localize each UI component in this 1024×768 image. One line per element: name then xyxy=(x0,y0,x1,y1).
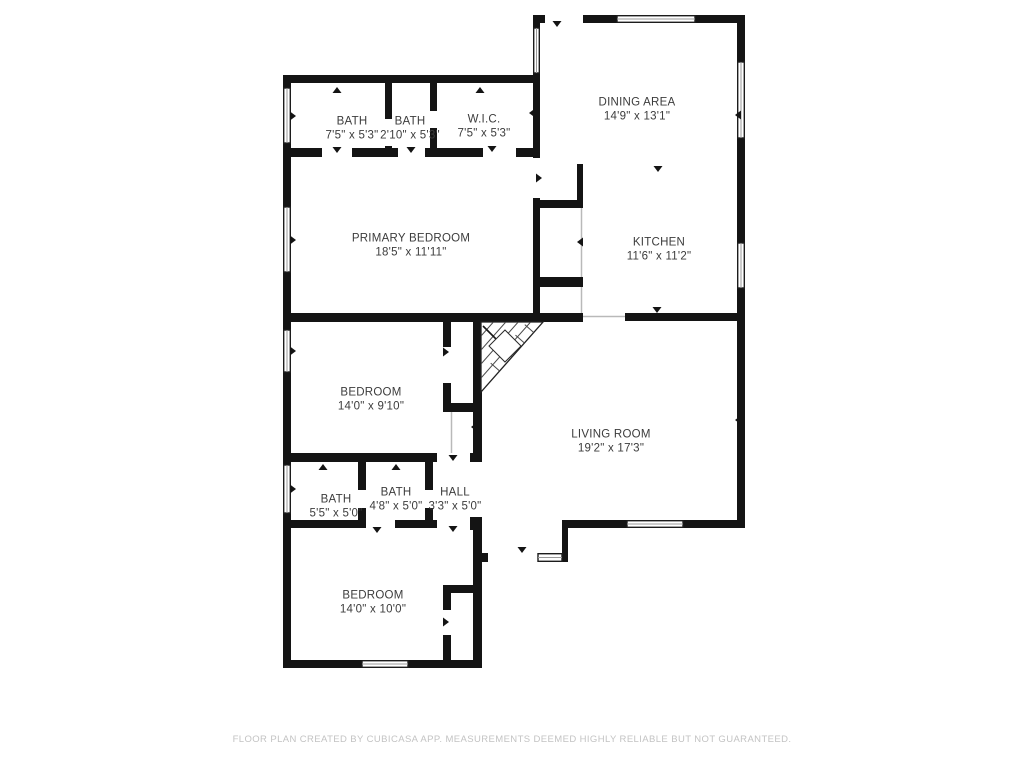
door-marker-icon xyxy=(319,464,328,470)
floor-plan-svg xyxy=(0,0,1024,768)
room-name: BATH xyxy=(369,487,422,501)
door-marker-icon xyxy=(518,547,527,553)
room-label: PRIMARY BEDROOM18'5" x 11'11" xyxy=(352,233,470,260)
door-marker-icon xyxy=(653,307,662,313)
door-marker-icon xyxy=(392,464,401,470)
door-marker-icon xyxy=(333,87,342,93)
stairs-icon xyxy=(481,322,543,392)
room-name: LIVING ROOM xyxy=(571,429,650,443)
door-marker-icon xyxy=(443,348,449,357)
room-dims: 11'6" x 11'2" xyxy=(627,250,692,264)
room-name: PRIMARY BEDROOM xyxy=(352,233,470,247)
room-name: W.I.C. xyxy=(457,114,510,128)
footer-disclaimer: FLOOR PLAN CREATED BY CUBICASA APP. MEAS… xyxy=(0,734,1024,745)
room-dims: 7'5" x 5'3" xyxy=(457,127,510,141)
door-marker-icon xyxy=(654,166,663,172)
door-marker-icon xyxy=(443,618,449,627)
door-marker-icon xyxy=(449,455,458,461)
room-dims: 7'5" x 5'3" xyxy=(325,129,378,143)
room-label: HALL3'3" x 5'0" xyxy=(428,487,481,514)
door-marker-icon xyxy=(333,147,342,153)
room-name: BATH xyxy=(325,116,378,130)
room-label: W.I.C.7'5" x 5'3" xyxy=(457,114,510,141)
door-marker-icon xyxy=(476,87,485,93)
room-label: BEDROOM14'0" x 9'10" xyxy=(338,387,404,414)
room-label: BATH5'5" x 5'0" xyxy=(309,494,362,521)
room-dims: 19'2" x 17'3" xyxy=(571,442,650,456)
room-name: DINING AREA xyxy=(599,97,676,111)
room-label: BATH4'8" x 5'0" xyxy=(369,487,422,514)
room-dims: 4'8" x 5'0" xyxy=(369,500,422,514)
room-dims: 14'0" x 9'10" xyxy=(338,400,404,414)
door-marker-icon xyxy=(553,21,562,27)
room-name: HALL xyxy=(428,487,481,501)
room-name: BEDROOM xyxy=(338,387,404,401)
door-marker-icon xyxy=(290,236,296,245)
door-marker-icon xyxy=(536,174,542,183)
door-marker-icon xyxy=(577,238,583,247)
room-dims: 18'5" x 11'11" xyxy=(352,246,470,260)
room-name: BATH xyxy=(380,116,440,130)
door-marker-icon xyxy=(290,112,296,121)
room-label: BEDROOM14'0" x 10'0" xyxy=(340,590,406,617)
floor-plan-canvas: BATH7'5" x 5'3"BATH2'10" x 5'3"W.I.C.7'5… xyxy=(0,0,1024,768)
room-label: BATH2'10" x 5'3" xyxy=(380,116,440,143)
room-dims: 14'9" x 13'1" xyxy=(599,110,676,124)
room-label: BATH7'5" x 5'3" xyxy=(325,116,378,143)
room-dims: 2'10" x 5'3" xyxy=(380,129,440,143)
room-label: KITCHEN11'6" x 11'2" xyxy=(627,237,692,264)
room-dims: 5'5" x 5'0" xyxy=(309,507,362,521)
room-label: LIVING ROOM19'2" x 17'3" xyxy=(571,429,650,456)
door-marker-icon xyxy=(290,485,296,494)
door-marker-icon xyxy=(488,146,497,152)
room-dims: 3'3" x 5'0" xyxy=(428,500,481,514)
room-label: DINING AREA14'9" x 13'1" xyxy=(599,97,676,124)
room-name: BEDROOM xyxy=(340,590,406,604)
door-marker-icon xyxy=(449,526,458,532)
door-marker-icon xyxy=(529,109,535,118)
room-name: KITCHEN xyxy=(627,237,692,251)
door-marker-icon xyxy=(373,527,382,533)
door-marker-icon xyxy=(290,347,296,356)
room-dims: 14'0" x 10'0" xyxy=(340,603,406,617)
door-marker-icon xyxy=(407,147,416,153)
room-name: BATH xyxy=(309,494,362,508)
